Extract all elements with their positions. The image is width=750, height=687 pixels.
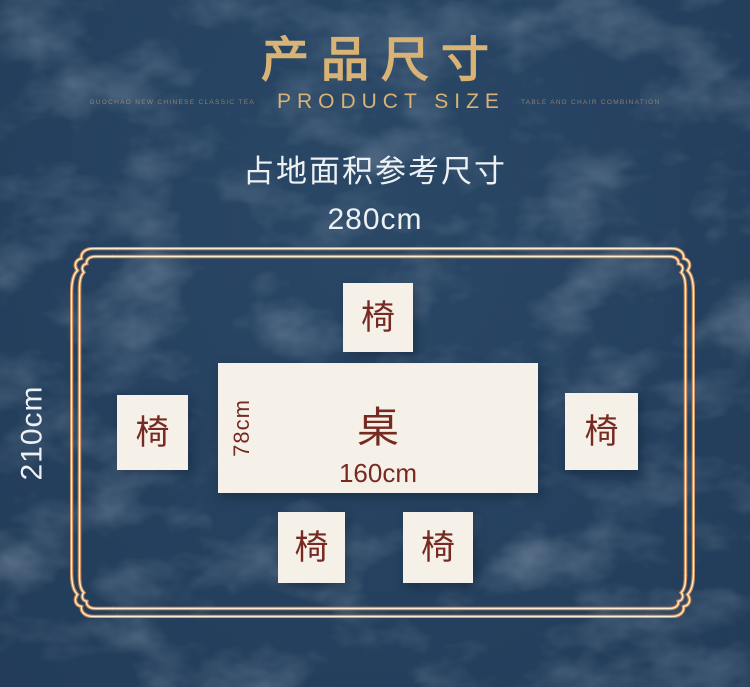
chair-block-bottom-right: 椅: [403, 512, 473, 583]
table-block: 78cm 桌 160cm: [218, 363, 538, 493]
page-title: 产品尺寸: [0, 20, 750, 90]
table-label: 桌: [218, 407, 538, 449]
page-subtitle: PRODUCT SIZE: [271, 90, 505, 114]
overall-depth-label-wrap: 210cm: [0, 247, 66, 618]
overall-width-label: 280cm: [0, 203, 750, 237]
subtitle-row: GUOCHAO NEW CHINESE CLASSIC TEA PRODUCT …: [0, 90, 750, 114]
tagline-right: TABLE AND CHAIR COMBINATION: [521, 99, 661, 106]
chair-block-right: 椅: [565, 393, 638, 470]
chair-block-top: 椅: [343, 283, 413, 352]
diagram-caption: 占地面积参考尺寸: [0, 146, 750, 191]
overall-depth-label: 210cm: [16, 385, 50, 480]
table-width-label: 160cm: [218, 460, 538, 486]
chair-block-left: 椅: [117, 395, 188, 470]
chair-block-bottom-left: 椅: [278, 512, 345, 583]
product-size-section: 产品尺寸 GUOCHAO NEW CHINESE CLASSIC TEA PRO…: [0, 0, 750, 687]
tagline-left: GUOCHAO NEW CHINESE CLASSIC TEA: [89, 99, 255, 106]
